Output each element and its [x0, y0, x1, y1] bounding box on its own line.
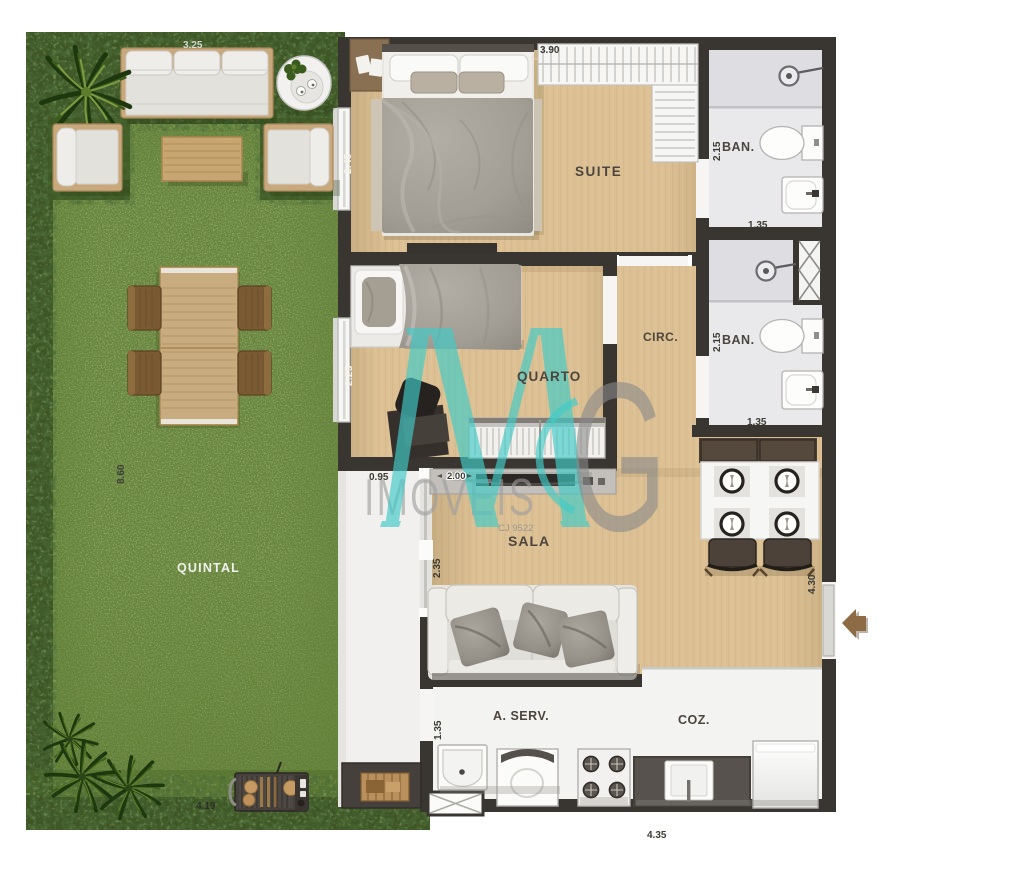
svg-text:3.25: 3.25 — [183, 40, 203, 51]
svg-text:A. SERV.: A. SERV. — [493, 709, 549, 723]
svg-text:2.45: 2.45 — [342, 153, 354, 174]
svg-text:4.30: 4.30 — [807, 574, 818, 594]
svg-text:QUARTO: QUARTO — [517, 369, 581, 384]
svg-text:BAN.: BAN. — [722, 333, 755, 347]
svg-text:4.19: 4.19 — [196, 801, 216, 812]
svg-text:0.95: 0.95 — [369, 472, 389, 483]
svg-text:BAN.: BAN. — [722, 140, 755, 154]
svg-text:1.35: 1.35 — [748, 220, 768, 231]
svg-text:CIRC.: CIRC. — [643, 330, 678, 344]
svg-text:2.00: 2.00 — [447, 471, 466, 482]
svg-text:8.60: 8.60 — [116, 464, 127, 484]
svg-text:SALA: SALA — [508, 533, 550, 549]
svg-text:G: G — [570, 338, 667, 575]
svg-text:COZ.: COZ. — [678, 713, 710, 727]
svg-text:2.15: 2.15 — [712, 141, 723, 161]
svg-text:2.15: 2.15 — [712, 332, 723, 352]
svg-text:3.90: 3.90 — [540, 45, 560, 56]
svg-text:4.35: 4.35 — [647, 830, 667, 841]
svg-text:QUINTAL: QUINTAL — [177, 561, 240, 575]
svg-text:1.35: 1.35 — [433, 720, 444, 740]
svg-text:1.35: 1.35 — [747, 417, 767, 428]
svg-text:2.25: 2.25 — [343, 365, 355, 386]
svg-text:2.35: 2.35 — [432, 558, 443, 578]
svg-text:SUITE: SUITE — [575, 164, 622, 179]
